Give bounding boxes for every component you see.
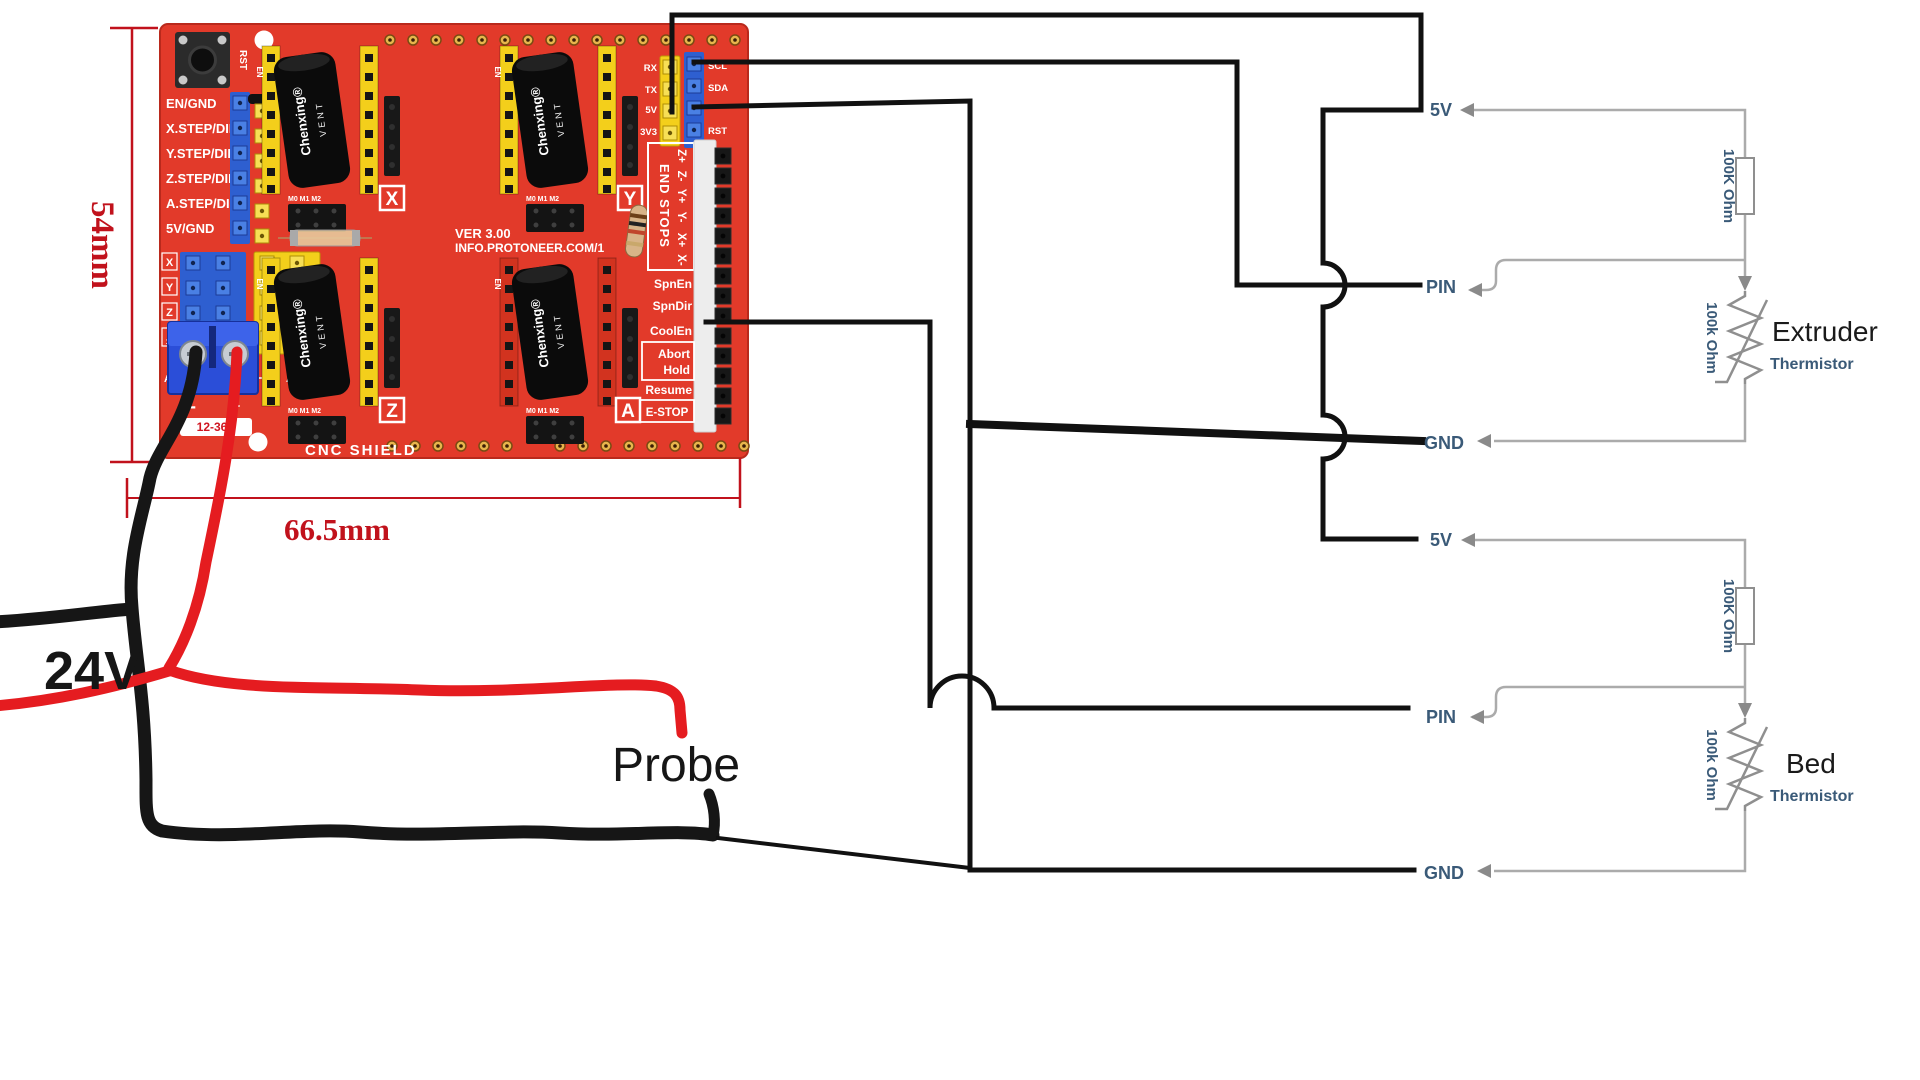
spare-header[interactable] <box>384 96 400 176</box>
height-dimension-label: 54mm <box>84 201 120 289</box>
label-spndir: SpnDir <box>653 299 693 313</box>
circuit2-component-label: Thermistor <box>1770 788 1854 805</box>
pin-label-a-step: A.STEP/DIR <box>166 196 240 211</box>
circuit1-resistor-value: 100K Ohm <box>1720 149 1737 223</box>
circuit1-pin-label: PIN <box>1426 277 1456 297</box>
pin-label-x-step: X.STEP/DIR <box>166 121 239 136</box>
power-wire-black-end <box>709 794 714 835</box>
circuit1-gnd-label: GND <box>1424 433 1464 453</box>
pin-label-y-step: Y.STEP/DIR <box>166 146 237 161</box>
circuit2-5v-label: 5V <box>1430 530 1452 550</box>
label-coolen: CoolEn <box>650 324 692 338</box>
endstop-y-minus: Y- <box>675 212 687 223</box>
cnc-shield-board: RST EN/GND X.STEP/DIR Y.STEP/DIR Z.STEP/… <box>160 24 749 459</box>
label-estop: E-STOP <box>646 407 689 419</box>
svg-text:A: A <box>621 401 635 422</box>
i2c-label-sda: SDA <box>708 83 728 94</box>
serial-label-3v3: 3V3 <box>640 127 657 138</box>
circuit2-resistor <box>1736 588 1754 644</box>
pin-label-5v-gnd: 5V/GND <box>166 221 214 236</box>
spare-header[interactable] <box>384 308 400 388</box>
circuit2-pin-label: PIN <box>1426 707 1456 727</box>
label-spnen: SpnEn <box>654 277 692 291</box>
endstop-z-minus: Z- <box>675 171 687 182</box>
circuit1-component-label: Thermistor <box>1770 356 1854 373</box>
circuit1-device-label: Extruder <box>1772 316 1878 347</box>
jumper-label-z: Z <box>166 307 173 319</box>
supply-voltage-label: 24V <box>44 641 140 701</box>
serial-label-tx: TX <box>645 85 658 96</box>
endstops-title: END STOPS <box>657 164 672 248</box>
circuit1-thermistor-value: 100k Ohm <box>1703 302 1720 374</box>
board-version: VER 3.00 <box>455 226 511 241</box>
circuit2-thermistor-value: 100k Ohm <box>1703 729 1720 801</box>
label-resume: Resume <box>645 383 692 397</box>
serial-label-5v: 5V <box>645 105 657 116</box>
circuit1-5v-label: 5V <box>1430 100 1452 120</box>
circuit2-device-label: Bed <box>1786 748 1836 779</box>
endstop-y-plus: Y+ <box>675 189 687 204</box>
pin-label-en-gnd: EN/GND <box>166 96 217 111</box>
circuit2-gnd-label: GND <box>1424 863 1464 883</box>
serial-label-rx: RX <box>644 63 658 74</box>
circuit2-resistor-value: 100K Ohm <box>1720 579 1737 653</box>
mounting-hole <box>249 433 268 452</box>
label-hold: Hold <box>663 363 690 377</box>
board-name: CNC SHIELD <box>305 442 417 459</box>
circuit1-resistor <box>1736 158 1754 214</box>
endstop-x-minus: X- <box>675 254 687 266</box>
pin-label-z-step: Z.STEP/DIR <box>166 171 238 186</box>
jumper-label-y: Y <box>166 282 174 294</box>
i2c-header-blue[interactable] <box>684 52 704 148</box>
label-abort: Abort <box>658 347 690 361</box>
power-terminal[interactable] <box>168 322 258 394</box>
glass-diode <box>278 230 372 246</box>
svg-text:X: X <box>386 189 399 210</box>
stepdir-header-blue[interactable] <box>230 92 250 244</box>
probe-label: Probe <box>612 739 740 792</box>
spare-header[interactable] <box>622 308 638 388</box>
width-dimension-label: 66.5mm <box>284 512 390 547</box>
jumper-label-x: X <box>166 257 174 269</box>
endstop-z-plus: Z+ <box>675 149 687 163</box>
i2c-label-rst: RST <box>708 126 727 137</box>
endstop-x-plus: X+ <box>675 233 687 248</box>
spare-header[interactable] <box>622 96 638 176</box>
wiring-diagram: EN Chenxing® VENT M0 M1 M2 <box>0 0 1920 1080</box>
reset-label: RST <box>237 50 248 70</box>
svg-text:Z: Z <box>386 401 398 422</box>
diagram-canvas: EN Chenxing® VENT M0 M1 M2 <box>0 0 1920 1080</box>
board-url: INFO.PROTONEER.COM/1 <box>455 241 604 255</box>
reset-button[interactable] <box>175 32 230 88</box>
